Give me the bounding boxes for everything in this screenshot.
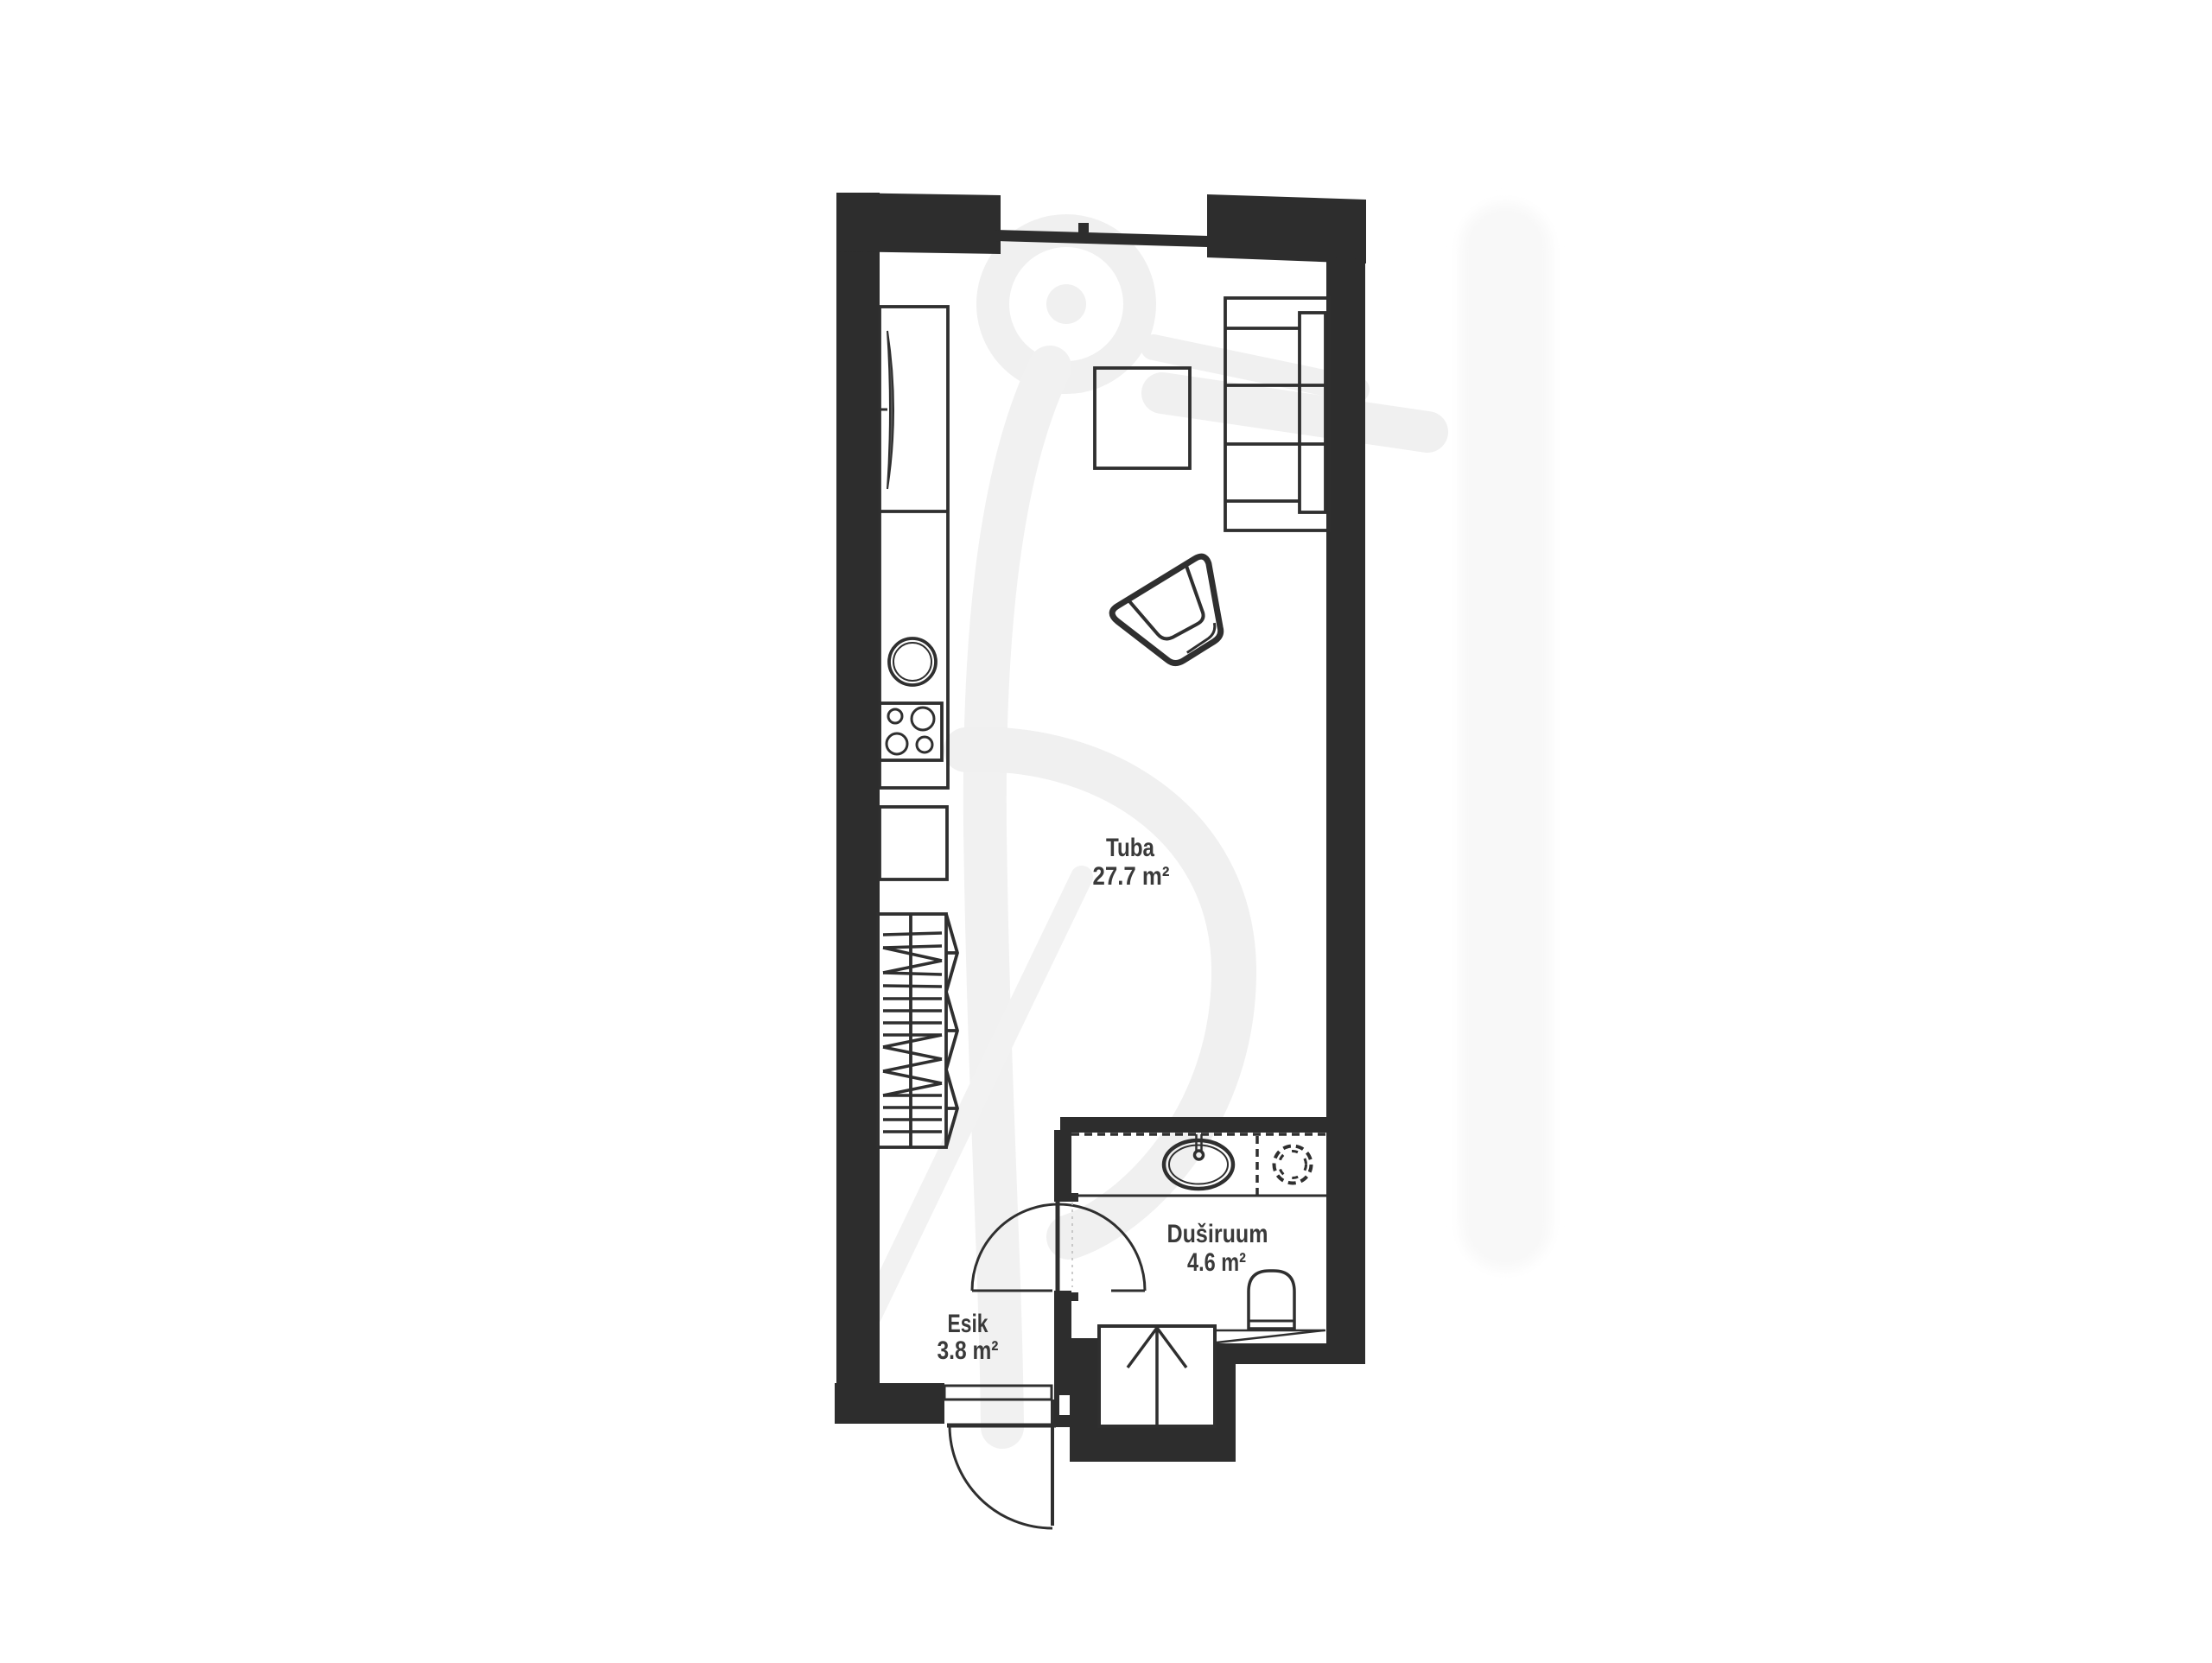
svg-text:4.6 m²: 4.6 m² — [1187, 1248, 1246, 1277]
svg-text:Esik: Esik — [948, 1310, 988, 1338]
svg-text:Duširuum: Duširuum — [1167, 1220, 1268, 1248]
svg-text:3.8 m²: 3.8 m² — [938, 1336, 999, 1365]
svg-text:27.7 m²: 27.7 m² — [1093, 862, 1170, 891]
svg-text:Tuba: Tuba — [1106, 834, 1154, 862]
